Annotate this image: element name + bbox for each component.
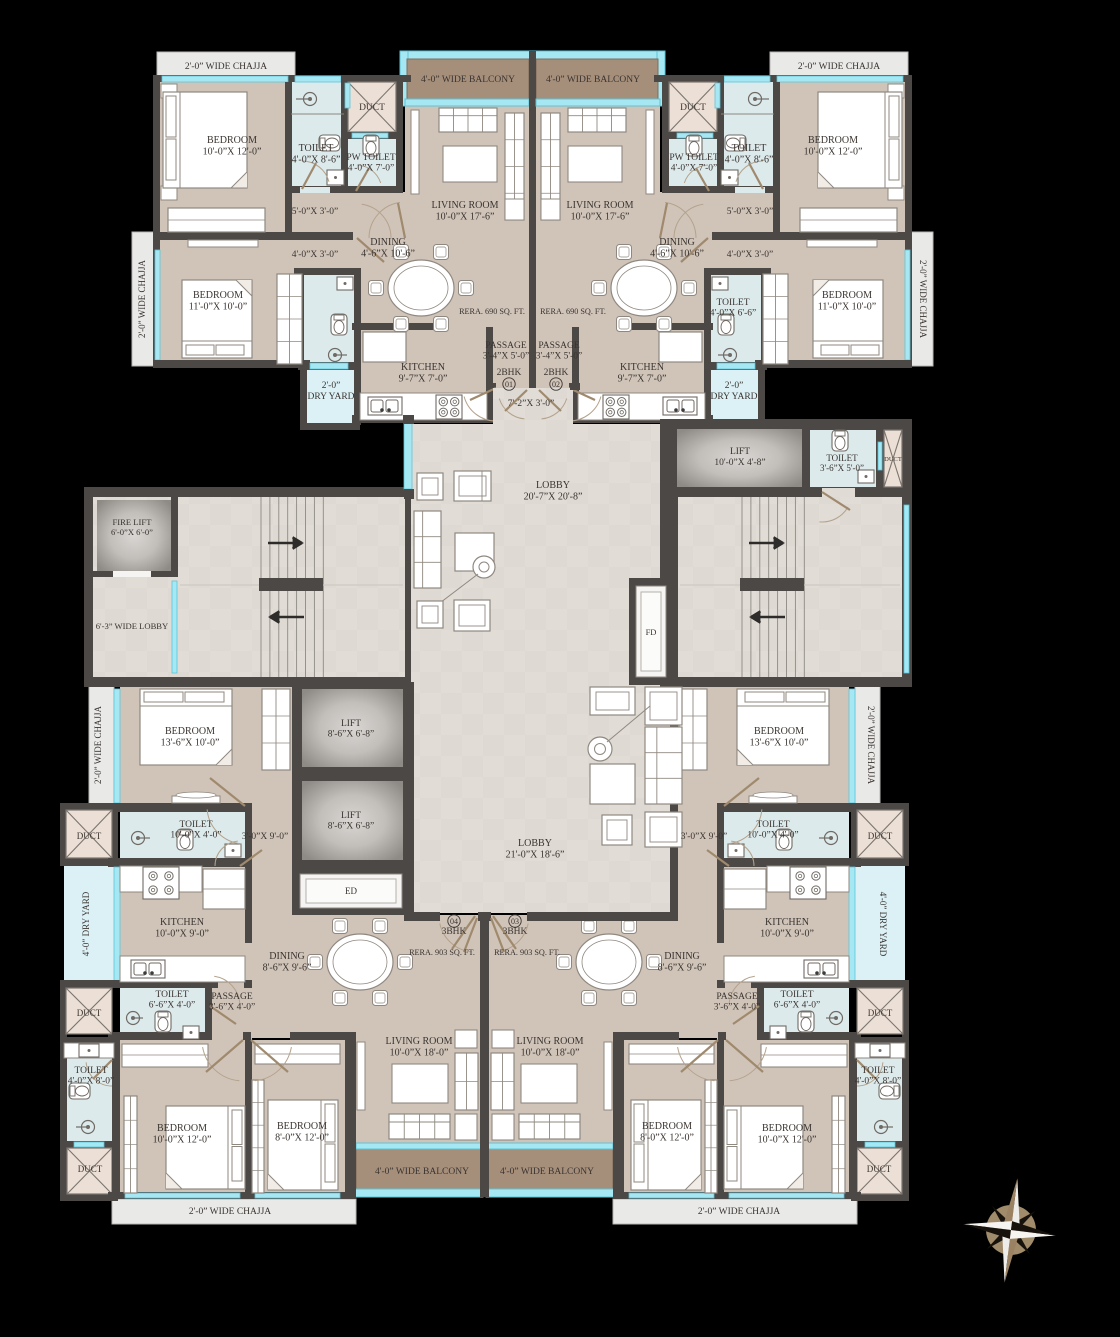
- svg-text:DINING: DINING: [370, 237, 406, 248]
- svg-text:4'-0”X 8'-6”: 4'-0”X 8'-6”: [292, 155, 341, 166]
- svg-text:4'-0”X 8'-6”: 4'-0”X 8'-6”: [725, 155, 774, 166]
- svg-text:3BHK: 3BHK: [503, 927, 528, 937]
- svg-text:10'-0”X 17'-6”: 10'-0”X 17'-6”: [436, 212, 495, 223]
- svg-text:BEDROOM: BEDROOM: [207, 135, 257, 146]
- svg-text:LIVING ROOM: LIVING ROOM: [386, 1036, 453, 1047]
- svg-text:21'-0”X 18'-6”: 21'-0”X 18'-6”: [506, 850, 565, 861]
- svg-text:PASSAGE: PASSAGE: [211, 992, 253, 1002]
- svg-text:DINING: DINING: [664, 951, 700, 962]
- svg-text:7'-2”X 3'-0”: 7'-2”X 3'-0”: [508, 399, 554, 409]
- svg-text:RERA. 690 SQ. FT.: RERA. 690 SQ. FT.: [540, 307, 606, 316]
- svg-text:5'-0”X 3'-0”: 5'-0”X 3'-0”: [727, 207, 773, 217]
- svg-text:3'-0”X 9'-0”: 3'-0”X 9'-0”: [681, 832, 727, 842]
- svg-text:03: 03: [511, 917, 519, 926]
- svg-text:4'-0”X 8'-0”: 4'-0”X 8'-0”: [68, 1077, 114, 1087]
- svg-text:PASSAGE: PASSAGE: [485, 341, 527, 351]
- svg-text:ED: ED: [345, 886, 357, 896]
- svg-text:PASSAGE: PASSAGE: [538, 341, 580, 351]
- svg-text:10'-0”X 4'-8”: 10'-0”X 4'-8”: [714, 458, 765, 468]
- svg-text:2'-0” WIDE CHAJJA: 2'-0” WIDE CHAJJA: [137, 260, 147, 338]
- svg-text:9'-7”X 7'-0”: 9'-7”X 7'-0”: [399, 374, 448, 385]
- svg-text:10'-0”X 9'-0”: 10'-0”X 9'-0”: [760, 929, 814, 940]
- svg-text:DRY YARD: DRY YARD: [307, 392, 354, 402]
- svg-text:6'-0”X 6'-0”: 6'-0”X 6'-0”: [111, 527, 153, 537]
- svg-text:4'-0”X 7'-0”: 4'-0”X 7'-0”: [671, 164, 717, 174]
- svg-text:8'-0”X 12'-0”: 8'-0”X 12'-0”: [640, 1133, 694, 1144]
- svg-text:TOILET: TOILET: [299, 143, 334, 154]
- svg-text:6'-3” WIDE LOBBY: 6'-3” WIDE LOBBY: [96, 621, 169, 631]
- svg-text:8'-0”X 12'-0”: 8'-0”X 12'-0”: [275, 1133, 329, 1144]
- svg-text:KITCHEN: KITCHEN: [160, 917, 204, 928]
- svg-text:10'-0”X 17'-6”: 10'-0”X 17'-6”: [571, 212, 630, 223]
- svg-text:LIFT: LIFT: [730, 447, 750, 457]
- svg-text:TOILET: TOILET: [826, 453, 858, 463]
- svg-text:2'-0”: 2'-0”: [725, 381, 744, 391]
- svg-text:3'-6”X 5'-0”: 3'-6”X 5'-0”: [820, 463, 864, 473]
- svg-text:DUCT: DUCT: [867, 1164, 892, 1174]
- svg-text:10'-0”X 18'-0”: 10'-0”X 18'-0”: [390, 1048, 449, 1059]
- svg-text:DUCT: DUCT: [868, 1008, 893, 1018]
- svg-text:2BHK: 2BHK: [544, 368, 569, 378]
- svg-text:10'-0”X 4'-0”: 10'-0”X 4'-0”: [747, 831, 798, 841]
- svg-text:8'-6”X 6'-8”: 8'-6”X 6'-8”: [328, 822, 374, 832]
- svg-text:LOBBY: LOBBY: [536, 480, 570, 491]
- svg-text:LIVING ROOM: LIVING ROOM: [432, 200, 499, 211]
- svg-text:TOILET: TOILET: [861, 1066, 894, 1076]
- svg-text:DINING: DINING: [659, 237, 695, 248]
- svg-text:8'-6”X 9'-6”: 8'-6”X 9'-6”: [658, 963, 707, 974]
- svg-text:2'-0” WIDE CHAJJA: 2'-0” WIDE CHAJJA: [189, 1207, 271, 1217]
- svg-text:2'-0” WIDE CHAJJA: 2'-0” WIDE CHAJJA: [798, 62, 880, 72]
- svg-text:FIRE LIFT: FIRE LIFT: [113, 517, 153, 527]
- svg-text:2'-0” WIDE CHAJJA: 2'-0” WIDE CHAJJA: [698, 1207, 780, 1217]
- svg-text:KITCHEN: KITCHEN: [620, 362, 664, 373]
- svg-text:PW TOILET: PW TOILET: [346, 153, 396, 163]
- svg-text:DUCT: DUCT: [680, 103, 706, 113]
- svg-text:5'-0”X 3'-0”: 5'-0”X 3'-0”: [292, 207, 338, 217]
- svg-text:RERA. 903 SQ. FT.: RERA. 903 SQ. FT.: [409, 948, 475, 957]
- svg-text:4'-0” WIDE BALCONY: 4'-0” WIDE BALCONY: [546, 75, 640, 85]
- svg-text:BEDROOM: BEDROOM: [822, 290, 872, 301]
- svg-text:10'-0”X 12'-0”: 10'-0”X 12'-0”: [153, 1135, 212, 1146]
- svg-text:BEDROOM: BEDROOM: [157, 1123, 207, 1134]
- svg-text:TOILET: TOILET: [155, 990, 188, 1000]
- svg-text:DUCT: DUCT: [77, 831, 102, 841]
- svg-text:LIVING ROOM: LIVING ROOM: [567, 200, 634, 211]
- svg-text:TOILET: TOILET: [732, 143, 767, 154]
- svg-text:3'-6”X 4'-0”: 3'-6”X 4'-0”: [209, 1003, 255, 1013]
- svg-text:3'-0”X 9'-0”: 3'-0”X 9'-0”: [242, 832, 288, 842]
- svg-text:4'-0” DRY YARD: 4'-0” DRY YARD: [878, 892, 888, 957]
- svg-text:10'-0”X 12'-0”: 10'-0”X 12'-0”: [758, 1135, 817, 1146]
- svg-text:RERA. 690 SQ. FT.: RERA. 690 SQ. FT.: [459, 307, 525, 316]
- svg-text:4'-6”X 10'-6”: 4'-6”X 10'-6”: [361, 249, 415, 260]
- svg-text:4'-0”X 3'-0”: 4'-0”X 3'-0”: [292, 250, 338, 260]
- svg-text:10'-0”X 18'-0”: 10'-0”X 18'-0”: [521, 1048, 580, 1059]
- svg-text:10'-0”X 12'-0”: 10'-0”X 12'-0”: [203, 147, 262, 158]
- svg-text:13'-6”X 10'-0”: 13'-6”X 10'-0”: [161, 738, 220, 749]
- svg-text:DUCT: DUCT: [884, 456, 902, 463]
- svg-text:3'-4”X 5'-0”: 3'-4”X 5'-0”: [483, 352, 529, 362]
- svg-text:LIFT: LIFT: [341, 811, 361, 821]
- svg-text:11'-0”X 10'-0”: 11'-0”X 10'-0”: [818, 302, 877, 313]
- svg-text:3'-6”X 4'-0”: 3'-6”X 4'-0”: [714, 1003, 760, 1013]
- svg-text:BEDROOM: BEDROOM: [642, 1121, 692, 1132]
- svg-text:2'-0” WIDE CHAJJA: 2'-0” WIDE CHAJJA: [866, 706, 876, 784]
- svg-text:PASSAGE: PASSAGE: [716, 992, 758, 1002]
- svg-text:8'-6”X 6'-8”: 8'-6”X 6'-8”: [328, 730, 374, 740]
- svg-text:BEDROOM: BEDROOM: [193, 290, 243, 301]
- svg-text:4'-0”X 8'-0”: 4'-0”X 8'-0”: [855, 1077, 901, 1087]
- svg-text:02: 02: [552, 380, 560, 389]
- svg-text:DUCT: DUCT: [77, 1008, 102, 1018]
- svg-text:4'-0” WIDE BALCONY: 4'-0” WIDE BALCONY: [500, 1167, 594, 1177]
- svg-text:BEDROOM: BEDROOM: [762, 1123, 812, 1134]
- svg-text:TOILET: TOILET: [716, 298, 749, 308]
- svg-text:4'-0” WIDE BALCONY: 4'-0” WIDE BALCONY: [421, 75, 515, 85]
- svg-text:6'-6”X 4'-0”: 6'-6”X 4'-0”: [149, 1001, 195, 1011]
- svg-text:4'-0” WIDE BALCONY: 4'-0” WIDE BALCONY: [375, 1167, 469, 1177]
- svg-text:BEDROOM: BEDROOM: [277, 1121, 327, 1132]
- svg-text:DUCT: DUCT: [868, 831, 893, 841]
- svg-text:2'-0” WIDE CHAJJA: 2'-0” WIDE CHAJJA: [185, 62, 267, 72]
- svg-text:KITCHEN: KITCHEN: [765, 917, 809, 928]
- svg-text:01: 01: [505, 380, 513, 389]
- svg-text:11'-0”X 10'-0”: 11'-0”X 10'-0”: [189, 302, 248, 313]
- svg-text:TOILET: TOILET: [756, 820, 789, 830]
- svg-text:04: 04: [450, 917, 458, 926]
- svg-text:3'-4”X 5'-0”: 3'-4”X 5'-0”: [536, 352, 582, 362]
- svg-text:2'-0” WIDE CHAJJA: 2'-0” WIDE CHAJJA: [918, 260, 928, 338]
- svg-text:PW TOILET: PW TOILET: [669, 153, 719, 163]
- svg-text:4'-0”X 3'-0”: 4'-0”X 3'-0”: [727, 250, 773, 260]
- svg-text:2'-0”: 2'-0”: [322, 381, 341, 391]
- svg-text:4'-6”X 10'-6”: 4'-6”X 10'-6”: [650, 249, 704, 260]
- svg-text:8'-6”X 9'-6”: 8'-6”X 9'-6”: [263, 963, 312, 974]
- svg-text:FD: FD: [646, 627, 657, 637]
- svg-text:BEDROOM: BEDROOM: [754, 726, 804, 737]
- svg-text:20'-7”X 20'-8”: 20'-7”X 20'-8”: [524, 492, 583, 503]
- svg-text:4'-0” DRY YARD: 4'-0” DRY YARD: [81, 891, 91, 956]
- svg-text:4'-0”X 6'-6”: 4'-0”X 6'-6”: [710, 309, 756, 319]
- svg-text:DUCT: DUCT: [359, 103, 385, 113]
- svg-text:10'-0”X 12'-0”: 10'-0”X 12'-0”: [804, 147, 863, 158]
- svg-text:4'-0”X 7'-0”: 4'-0”X 7'-0”: [348, 164, 394, 174]
- svg-text:2'-0” WIDE CHAJJA: 2'-0” WIDE CHAJJA: [93, 706, 103, 784]
- svg-text:13'-6”X 10'-0”: 13'-6”X 10'-0”: [750, 738, 809, 749]
- svg-text:KITCHEN: KITCHEN: [401, 362, 445, 373]
- svg-text:6'-6”X 4'-0”: 6'-6”X 4'-0”: [774, 1001, 820, 1011]
- svg-text:10'-0”X 4'-0”: 10'-0”X 4'-0”: [170, 831, 221, 841]
- svg-text:TOILET: TOILET: [179, 820, 212, 830]
- svg-text:TOILET: TOILET: [780, 990, 813, 1000]
- svg-text:RERA. 903 SQ. FT.: RERA. 903 SQ. FT.: [494, 948, 560, 957]
- svg-text:LOBBY: LOBBY: [518, 838, 552, 849]
- svg-text:LIVING ROOM: LIVING ROOM: [517, 1036, 584, 1047]
- svg-text:2BHK: 2BHK: [497, 368, 522, 378]
- svg-text:10'-0”X 9'-0”: 10'-0”X 9'-0”: [155, 929, 209, 940]
- svg-text:9'-7”X 7'-0”: 9'-7”X 7'-0”: [618, 374, 667, 385]
- svg-text:BEDROOM: BEDROOM: [808, 135, 858, 146]
- svg-text:TOILET: TOILET: [74, 1066, 107, 1076]
- svg-text:BEDROOM: BEDROOM: [165, 726, 215, 737]
- svg-text:3BHK: 3BHK: [442, 927, 467, 937]
- svg-text:DUCT: DUCT: [78, 1164, 103, 1174]
- svg-text:LIFT: LIFT: [341, 719, 361, 729]
- svg-text:DINING: DINING: [269, 951, 305, 962]
- svg-text:DRY YARD: DRY YARD: [710, 392, 757, 402]
